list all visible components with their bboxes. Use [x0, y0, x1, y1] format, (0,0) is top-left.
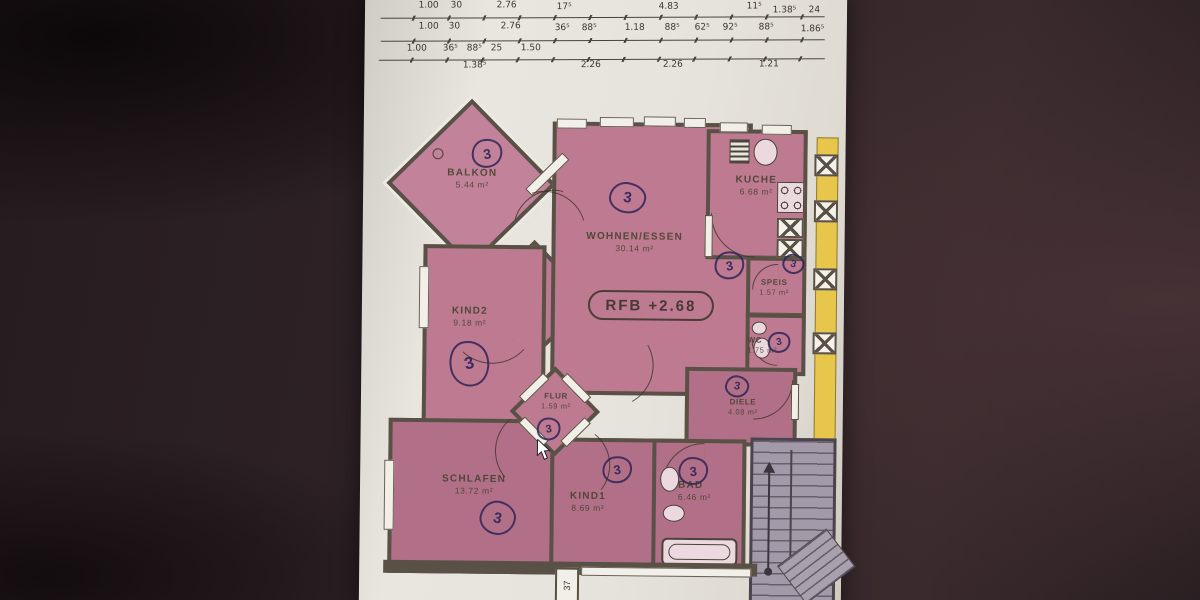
room-area: 8.69 m² [556, 503, 620, 515]
room-area: 9.18 m² [430, 317, 510, 329]
room-name: SPEIS [761, 278, 788, 287]
dim-label: 30 [449, 21, 460, 31]
dim-label: 36⁵ [443, 44, 458, 54]
neighbor-cross-box [814, 154, 838, 176]
dim-label: 36⁵ [555, 23, 570, 33]
room-area: 5.44 m² [427, 179, 517, 191]
dim-label: 62⁵ [695, 23, 710, 33]
dim-label: 30 [451, 0, 462, 10]
room-name: KIND1 [570, 491, 606, 502]
dim-label: 1.86⁵ [801, 24, 825, 34]
bottom-dimension-box: 37 [555, 568, 579, 600]
window [557, 119, 587, 129]
dim-label: 2.26 [663, 60, 683, 70]
room-area: 13.72 m² [426, 485, 522, 497]
level-label: RFB +2.68 [588, 290, 714, 321]
label-balkon: BALKON 5.44 m² [427, 166, 517, 191]
room-area: 4.08 m² [715, 408, 771, 418]
label-wohnen: WOHNEN/ESSEN 30.14 m² [574, 230, 694, 255]
label-schlafen: SCHLAFEN 13.72 m² [426, 472, 522, 497]
window [644, 116, 676, 126]
kitchen-counter-hatch [729, 139, 749, 163]
photo-of-floor-plan: 1.00 30 2.76 17⁵ 4.83 11⁵ 1.38⁵ 24 1.00 … [0, 0, 1200, 600]
room-name: BALKON [447, 167, 497, 179]
room-area: 6.46 m² [678, 492, 738, 504]
dim-label: 88⁵ [582, 23, 597, 33]
label-kind2: KIND2 9.18 m² [430, 304, 510, 329]
dimension-line [381, 14, 825, 21]
dim-label: 2.76 [497, 0, 517, 10]
dim-label: 2.26 [581, 60, 601, 70]
dim-label: 11⁵ [747, 1, 762, 11]
bath-toilet [663, 505, 685, 522]
floor-plan-sheet: 1.00 30 2.76 17⁵ 4.83 11⁵ 1.38⁵ 24 1.00 … [359, 0, 848, 600]
dim-label-vertical: 37 [562, 581, 572, 591]
dim-label: 4.83 [659, 2, 679, 12]
label-speis: SPEIS 1.57 m² [750, 278, 798, 299]
room-name: FLUR [544, 391, 568, 400]
label-diele: DIELE 4.08 m² [715, 397, 771, 418]
kitchen-unit-box [777, 218, 804, 238]
window [419, 266, 430, 328]
level-label-text: RFB +2.68 [605, 297, 696, 315]
dim-label: 88⁵ [665, 23, 680, 33]
room-name: KUCHE [735, 174, 777, 185]
bottom-sill [581, 567, 751, 578]
dim-label: 1.50 [521, 43, 541, 53]
room-name: WOHNEN/ESSEN [586, 231, 683, 243]
room-name: WC [748, 336, 763, 345]
dim-label: 1.18 [625, 23, 645, 33]
wc-sink [752, 322, 767, 335]
floor-plan: 1.00 30 2.76 17⁵ 4.83 11⁵ 1.38⁵ 24 1.00 … [365, 0, 841, 600]
neighbor-cross-box [814, 200, 838, 222]
window [684, 118, 706, 128]
window [720, 122, 748, 132]
kitchen-sink [753, 139, 777, 166]
dim-label: 1.00 [419, 22, 439, 32]
label-kueche: KUCHE 6.68 m² [721, 173, 791, 198]
neighbor-cross-box [812, 332, 836, 354]
room-area: 30.14 m² [574, 243, 694, 255]
dim-label: 17⁵ [557, 2, 572, 12]
dim-label: 1.00 [419, 1, 439, 11]
dim-label: 88⁵ [759, 22, 774, 32]
room-name: SCHLAFEN [442, 473, 506, 485]
window [762, 125, 792, 135]
label-flur: FLUR 1.59 m² [527, 391, 585, 412]
entrance-door-opening [791, 384, 799, 420]
dim-label: 1.00 [407, 44, 427, 54]
dim-label: 1.21 [759, 59, 779, 69]
dim-label: 2.76 [501, 21, 521, 31]
window [384, 460, 395, 530]
room-area: 1.57 m² [750, 288, 798, 298]
dim-label: 1.38⁵ [463, 60, 487, 70]
room-area: 6.68 m² [721, 186, 791, 198]
balcony-drain-symbol [432, 148, 443, 159]
dim-label: 88⁵ [467, 43, 482, 53]
room-name: KIND2 [452, 305, 488, 316]
dimension-chains: 1.00 30 2.76 17⁵ 4.83 11⁵ 1.38⁵ 24 1.00 … [379, 0, 829, 81]
kueche-door-opening [704, 215, 712, 257]
neighbor-cross-box [813, 268, 837, 290]
room-area: 1.59 m² [527, 402, 585, 412]
room-name: DIELE [730, 397, 757, 406]
dim-label: 25 [491, 43, 502, 53]
window [600, 117, 634, 127]
neighbor-unit-strip [814, 137, 839, 444]
label-kind1: KIND1 8.69 m² [556, 490, 620, 515]
dim-label: 92⁵ [723, 23, 738, 33]
